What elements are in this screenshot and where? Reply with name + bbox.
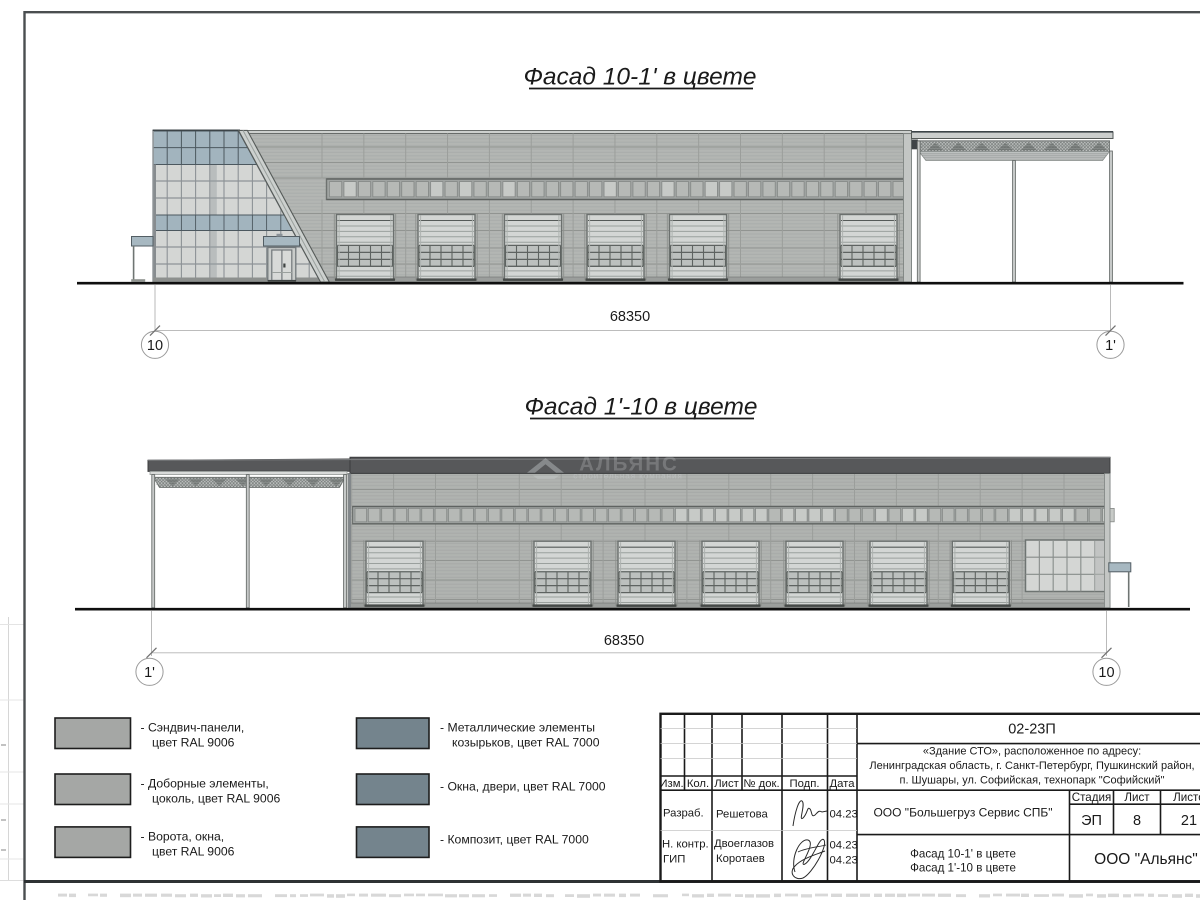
svg-text:цвет RAL 9006: цвет RAL 9006 [152, 735, 235, 749]
svg-text:04.23: 04.23 [830, 809, 858, 821]
svg-text:Ленинградская область, г. Санк: Ленинградская область, г. Санкт-Петербур… [869, 760, 1194, 772]
svg-text:Разраб.: Разраб. [663, 808, 704, 820]
svg-text:ООО "Альянс": ООО "Альянс" [1094, 851, 1198, 868]
svg-text:10: 10 [147, 338, 163, 354]
svg-text:п. Шушары, ул. Софийская, техн: п. Шушары, ул. Софийская, технопарк "Соф… [899, 774, 1164, 786]
svg-text:Решетова: Решетова [716, 809, 768, 821]
svg-text:Кол.: Кол. [687, 778, 709, 790]
svg-text:ГИП: ГИП [663, 854, 685, 866]
svg-text:№ док.: № док. [743, 778, 779, 790]
svg-text:Стадия: Стадия [1072, 791, 1112, 804]
svg-text:- Композит, цвет RAL 7000: - Композит, цвет RAL 7000 [440, 832, 589, 846]
svg-text:ЭП: ЭП [1081, 813, 1102, 829]
svg-text:цвет RAL 9006: цвет RAL 9006 [152, 844, 235, 858]
svg-text:Дата: Дата [829, 778, 855, 790]
svg-text:21: 21 [1181, 813, 1197, 829]
svg-text:Подп.: Подп. [789, 778, 819, 790]
svg-text:Лист: Лист [714, 778, 739, 790]
svg-text:строительная компания: строительная компания [573, 471, 683, 480]
svg-text:8: 8 [1133, 813, 1141, 829]
svg-text:Лист: Лист [1124, 791, 1150, 804]
svg-text:- Доборные элементы,: - Доборные элементы, [141, 776, 269, 790]
svg-text:04.23: 04.23 [830, 855, 858, 867]
svg-text:- Металлические элементы: - Металлические элементы [440, 720, 595, 734]
svg-text:02-23П: 02-23П [1008, 722, 1056, 738]
svg-text:- Ворота, окна,: - Ворота, окна, [141, 829, 225, 843]
svg-text:цоколь, цвет RAL 9006: цоколь, цвет RAL 9006 [152, 791, 280, 805]
svg-text:1': 1' [144, 665, 155, 681]
svg-text:Изм.: Изм. [659, 778, 683, 790]
svg-text:Н. контр.: Н. контр. [662, 839, 709, 851]
svg-text:Коротаев: Коротаев [716, 853, 765, 865]
svg-text:Двоеглазов: Двоеглазов [714, 838, 774, 850]
svg-text:Фасад 10-1' в цвете: Фасад 10-1' в цвете [523, 64, 756, 91]
svg-text:Фасад 1'-10 в цвете: Фасад 1'-10 в цвете [910, 862, 1016, 875]
svg-text:68350: 68350 [604, 633, 644, 649]
svg-text:Листов: Листов [1173, 791, 1200, 804]
svg-text:«Здание СТО», расположенное по: «Здание СТО», расположенное по адресу: [923, 745, 1141, 757]
svg-text:козырьков, цвет RAL 7000: козырьков, цвет RAL 7000 [452, 735, 600, 749]
svg-text:10: 10 [1098, 665, 1114, 681]
svg-text:1': 1' [1105, 338, 1116, 354]
svg-text:ООО "Большегруз Сервис СПБ": ООО "Большегруз Сервис СПБ" [873, 806, 1052, 820]
svg-text:Фасад 10-1' в цвете: Фасад 10-1' в цвете [910, 848, 1016, 861]
svg-text:68350: 68350 [610, 309, 650, 325]
svg-text:- Сэндвич-панели,: - Сэндвич-панели, [141, 720, 245, 734]
svg-text:Фасад 1'-10 в цвете: Фасад 1'-10 в цвете [524, 394, 757, 421]
svg-text:04.23: 04.23 [830, 840, 858, 852]
svg-text:- Окна, двери, цвет RAL 7000: - Окна, двери, цвет RAL 7000 [440, 780, 606, 794]
